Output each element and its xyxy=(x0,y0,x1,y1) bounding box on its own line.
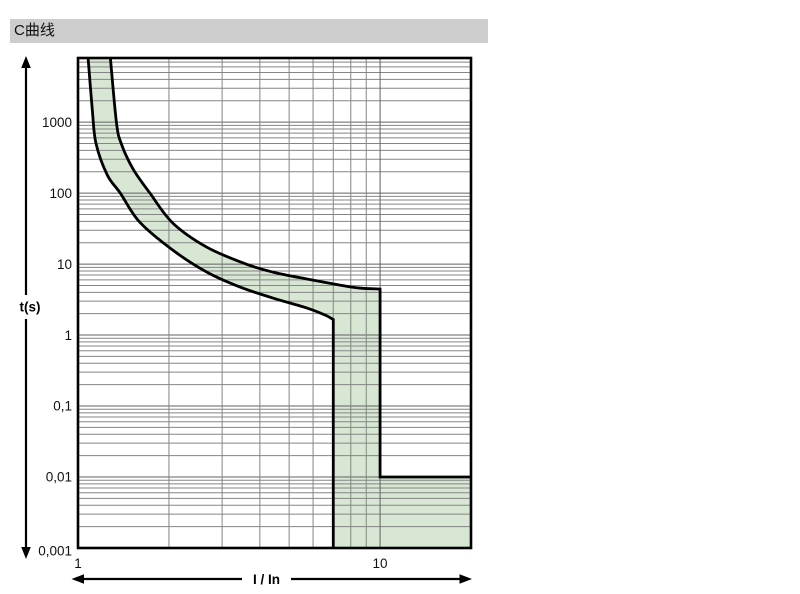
y-tick-label: 0,01 xyxy=(46,470,72,485)
y-arrow-head-down xyxy=(21,547,31,559)
trip-curve-chart: 10001001010,10,010,001110t(s)I / In xyxy=(0,0,800,594)
y-tick-label: 100 xyxy=(49,186,72,201)
y-axis-label: t(s) xyxy=(20,300,41,315)
x-tick-label: 1 xyxy=(74,556,82,571)
y-tick-label: 10 xyxy=(57,257,72,272)
x-arrow-head-right xyxy=(460,574,473,583)
y-tick-label: 1000 xyxy=(42,115,72,130)
y-tick-label: 0,1 xyxy=(53,399,72,414)
plot-frame xyxy=(78,58,471,548)
grid xyxy=(78,58,471,548)
page: C曲线 10001001010,10,010,001110t(s)I / In xyxy=(0,0,800,594)
x-arrow-head-left xyxy=(72,574,85,583)
x-tick-label: 10 xyxy=(373,556,388,571)
trip-band-fill xyxy=(88,58,471,548)
y-tick-label: 0,001 xyxy=(38,544,72,559)
x-axis-label: I / In xyxy=(253,572,280,587)
y-tick-label: 1 xyxy=(64,328,72,343)
y-arrow-head-up xyxy=(21,56,31,68)
